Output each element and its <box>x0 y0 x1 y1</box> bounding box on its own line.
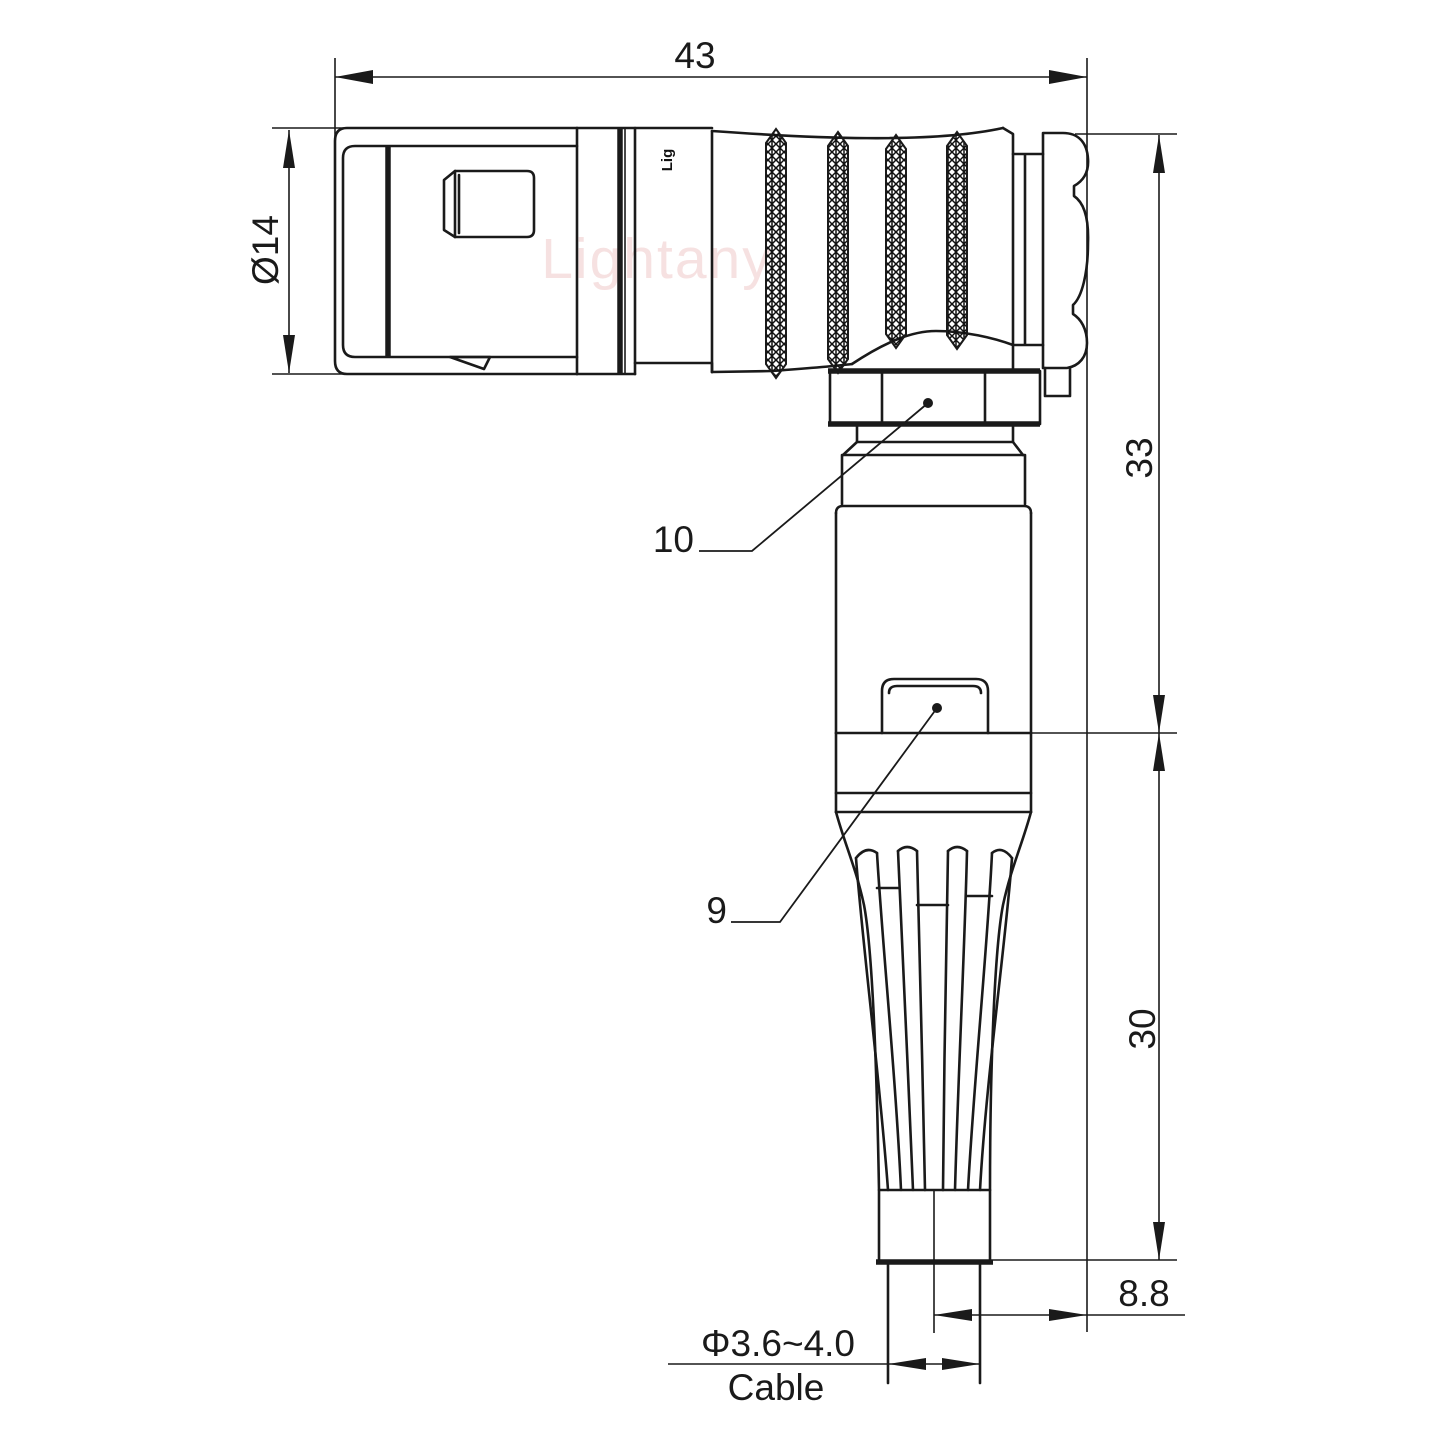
cable-label-text: Cable <box>728 1367 825 1408</box>
dim-axis-offset: 8.8 <box>934 1273 1185 1321</box>
leader-cable-clip: 9 <box>706 703 942 931</box>
part-label-coupling-nut: 10 <box>653 519 694 560</box>
dim-rear-diameter-text: Ø14 <box>245 215 286 285</box>
knurl-strip <box>766 129 786 378</box>
dim-lower-height-text: 30 <box>1122 1008 1163 1049</box>
knurl-strip <box>828 132 848 373</box>
latch-window <box>444 171 534 237</box>
technical-drawing-page: Lightany Lig <box>0 0 1440 1440</box>
engraving-text: Lig <box>659 149 676 172</box>
elbow-dome <box>852 331 1013 364</box>
dim-upper-height-text: 33 <box>1119 437 1160 478</box>
front-end-nut <box>1013 133 1088 396</box>
dim-axis-offset-text: 8.8 <box>1118 1273 1169 1314</box>
dim-upper-height: 33 <box>1075 134 1177 733</box>
gland-sleeve <box>836 733 1031 812</box>
dim-rear-diameter: Ø14 <box>245 128 345 374</box>
elbow-neck-and-collar <box>842 424 1025 504</box>
dim-cable-diameter-text: Φ3.6~4.0 <box>701 1323 855 1364</box>
end-ferrule <box>876 1190 993 1333</box>
connector-drawing: Lightany Lig <box>0 0 1440 1440</box>
knurl-strip <box>947 132 967 349</box>
elbow-hex-nut <box>828 371 1040 424</box>
knurl-strip <box>886 135 906 348</box>
main-body <box>836 506 1031 733</box>
dim-cable-diameter: Φ3.6~4.0 Cable <box>668 1323 980 1408</box>
latch-wedge <box>450 357 490 369</box>
dim-total-length-text: 43 <box>674 35 715 76</box>
part-label-cable-clip: 9 <box>706 890 727 931</box>
strain-relief <box>836 812 1031 1190</box>
